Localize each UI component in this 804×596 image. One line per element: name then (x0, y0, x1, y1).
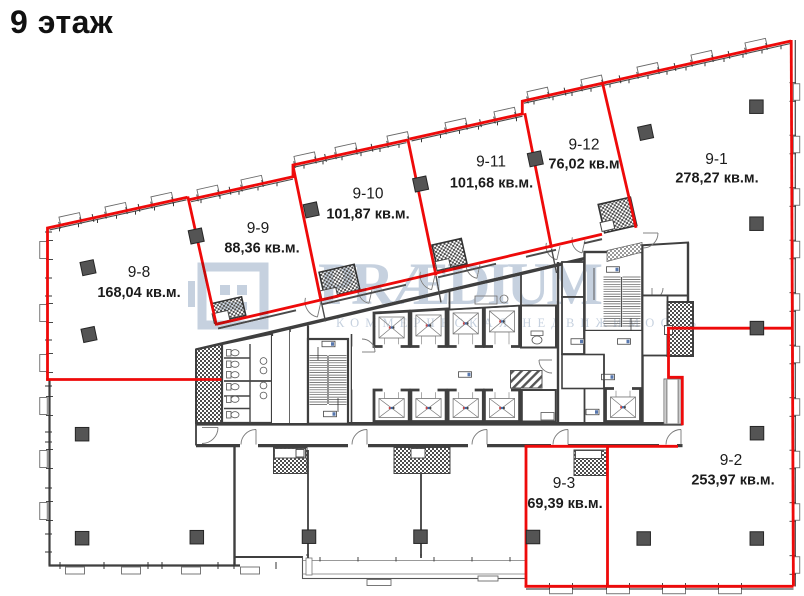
svg-text:69,39 кв.м.: 69,39 кв.м. (527, 496, 602, 512)
svg-text:PRÆDIUM: PRÆDIUM (318, 251, 603, 317)
svg-text:88,36 кв.м.: 88,36 кв.м. (224, 241, 299, 257)
svg-text:253,97 кв.м.: 253,97 кв.м. (691, 473, 774, 489)
svg-text:9-3: 9-3 (553, 475, 575, 492)
svg-text:9-10: 9-10 (352, 186, 383, 203)
svg-text:9-8: 9-8 (128, 264, 150, 281)
svg-text:101,68 кв.м.: 101,68 кв.м. (450, 176, 533, 192)
svg-text:101,87 кв.м.: 101,87 кв.м. (326, 207, 409, 223)
svg-text:9-9: 9-9 (247, 220, 269, 237)
svg-text:278,27 кв.м.: 278,27 кв.м. (675, 171, 758, 187)
svg-text:9 этаж: 9 этаж (10, 4, 113, 40)
svg-text:168,04 кв.м.: 168,04 кв.м. (97, 285, 180, 301)
svg-text:9-12: 9-12 (568, 137, 599, 154)
svg-text:76,02 кв.м: 76,02 кв.м (548, 157, 619, 173)
svg-text:9-1: 9-1 (705, 151, 727, 168)
svg-text:9-11: 9-11 (476, 154, 506, 171)
svg-text:9-2: 9-2 (720, 452, 742, 469)
